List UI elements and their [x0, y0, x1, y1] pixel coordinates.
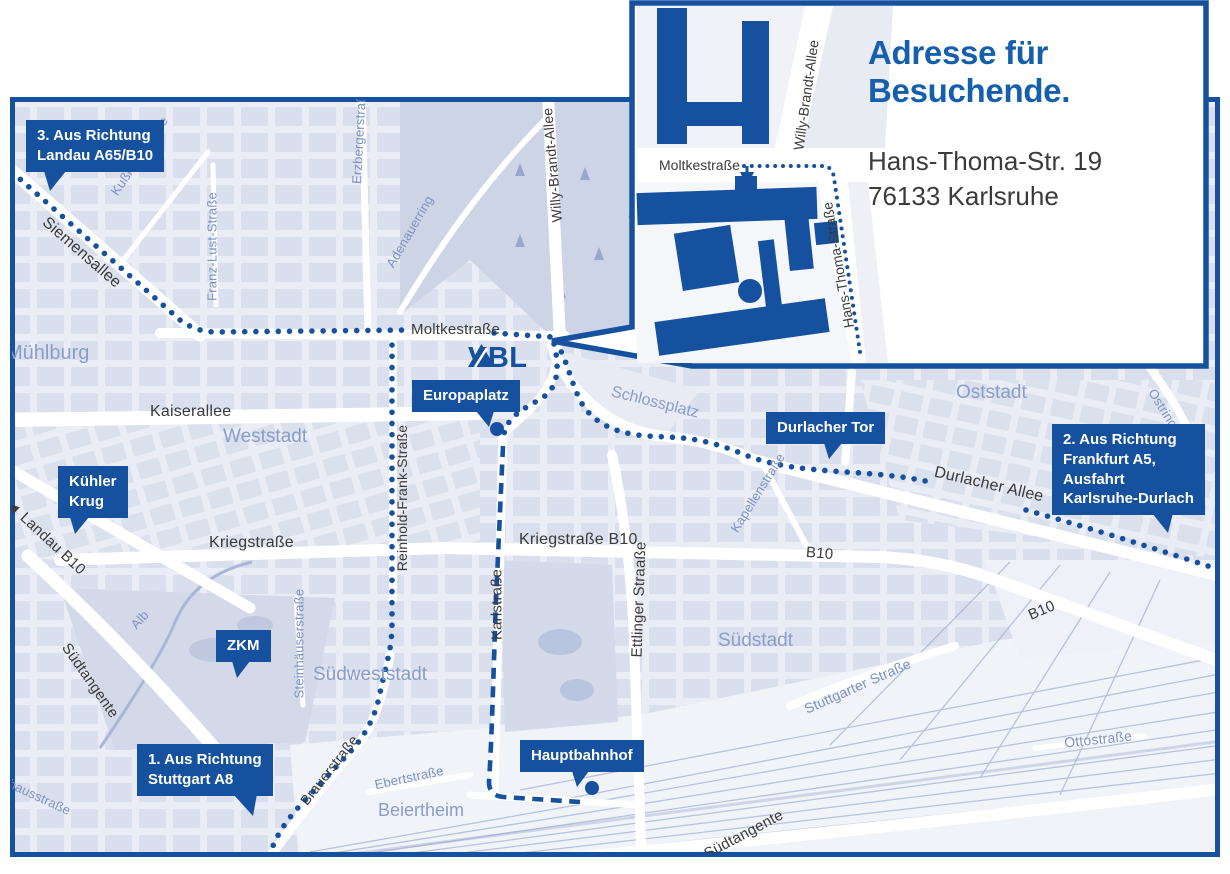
inset-title: Adresse für Besuchende. — [868, 34, 1070, 111]
inset-street-label-moltkestrasse: Moltkestraße — [659, 157, 740, 173]
karlsruhe-route-map: Siemensallee Moltkestraße Kaiserallee Kr… — [0, 0, 1230, 874]
inset-street-label-willy-brandt-allee: Willy-Brandt-Allee — [789, 30, 823, 161]
inset-title-line1: Adresse für — [868, 34, 1070, 72]
inset-title-line2: Besuchende. — [868, 72, 1070, 110]
inset-address-line1: Hans-Thoma-Str. 19 — [868, 144, 1102, 179]
inset-address: Hans-Thoma-Str. 19 76133 Karlsruhe — [868, 144, 1102, 215]
inset-street-label-hans-thoma-strasse: Hans-Thoma-Straße — [818, 195, 858, 336]
inset-address-line2: 76133 Karlsruhe — [868, 179, 1102, 214]
